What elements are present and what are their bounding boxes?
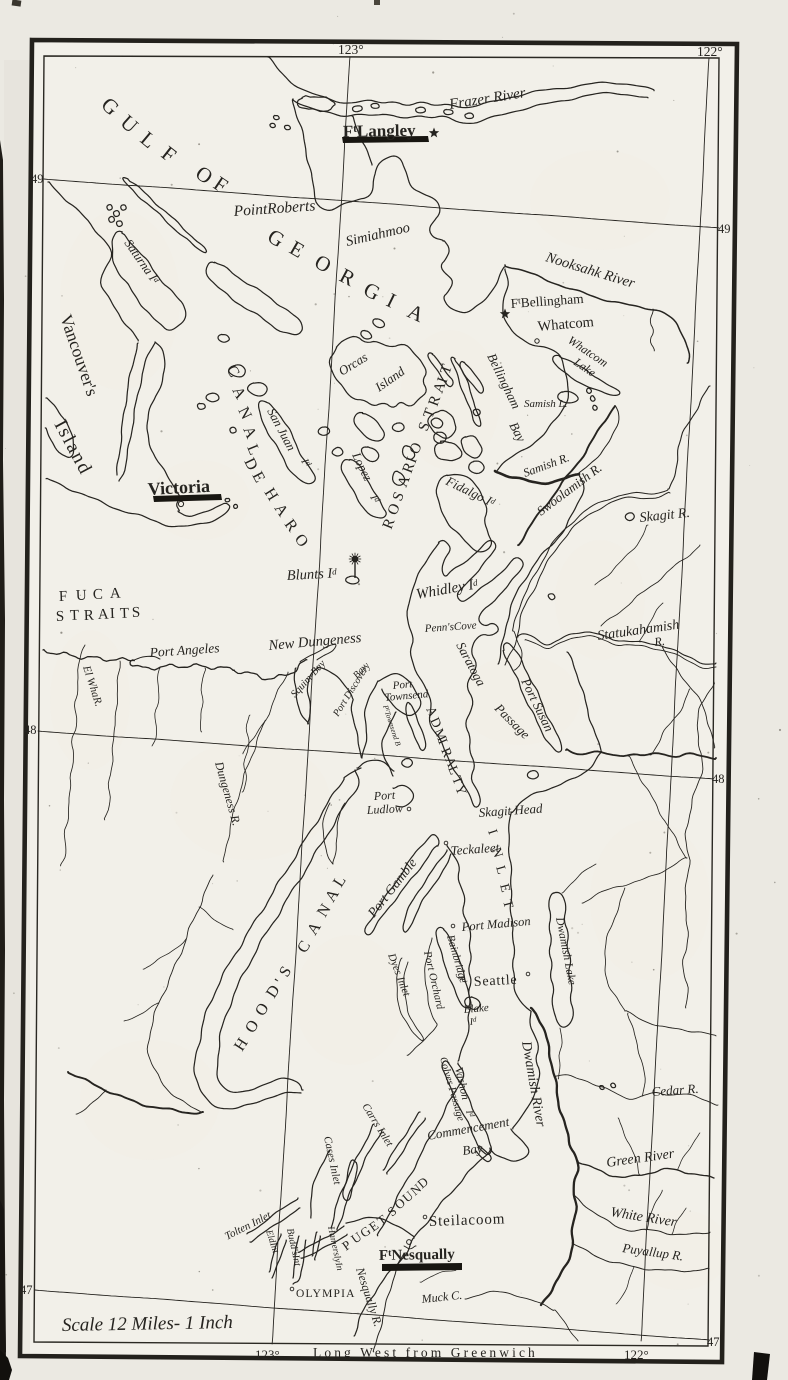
svg-text:R: R xyxy=(84,608,95,624)
svg-text:Seattle: Seattle xyxy=(473,973,517,990)
svg-text:48: 48 xyxy=(24,723,37,737)
svg-text:Samish L.: Samish L. xyxy=(524,398,567,410)
svg-text:S: S xyxy=(132,605,141,621)
svg-text:F: F xyxy=(59,589,68,605)
svg-text:OLYMPIA: OLYMPIA xyxy=(296,1288,356,1300)
svg-text:A: A xyxy=(98,607,110,623)
svg-text:Steilacoom: Steilacoom xyxy=(429,1211,506,1230)
svg-text:47: 47 xyxy=(20,1283,33,1297)
svg-text:122°: 122° xyxy=(697,44,723,59)
svg-text:Ludlow: Ludlow xyxy=(365,801,403,817)
svg-text:49: 49 xyxy=(718,222,731,236)
svg-text:Victoria: Victoria xyxy=(147,476,210,499)
svg-text:A: A xyxy=(110,586,122,602)
svg-text:47: 47 xyxy=(707,1335,720,1349)
svg-text:S: S xyxy=(56,609,65,625)
svg-text:123°: 123° xyxy=(255,1347,280,1362)
svg-text:Bay: Bay xyxy=(461,1140,483,1158)
svg-text:T: T xyxy=(120,606,130,622)
svg-text:Scale 12 Miles- 1 Inch: Scale 12 Miles- 1 Inch xyxy=(62,1312,233,1336)
svg-text:T: T xyxy=(70,608,80,624)
svg-text:122°: 122° xyxy=(624,1347,649,1362)
svg-text:C: C xyxy=(93,587,104,603)
svg-text:Blunts Id: Blunts Id xyxy=(286,565,337,584)
svg-text:Blake: Blake xyxy=(463,1002,489,1016)
svg-text:R.: R. xyxy=(652,634,665,649)
svg-text:U: U xyxy=(76,588,88,604)
svg-text:48: 48 xyxy=(712,772,725,786)
svg-text:Long West from Greenwich: Long West from Greenwich xyxy=(313,1345,538,1360)
svg-text:49: 49 xyxy=(31,172,44,186)
svg-text:I: I xyxy=(110,606,116,622)
svg-text:123°: 123° xyxy=(338,42,364,57)
